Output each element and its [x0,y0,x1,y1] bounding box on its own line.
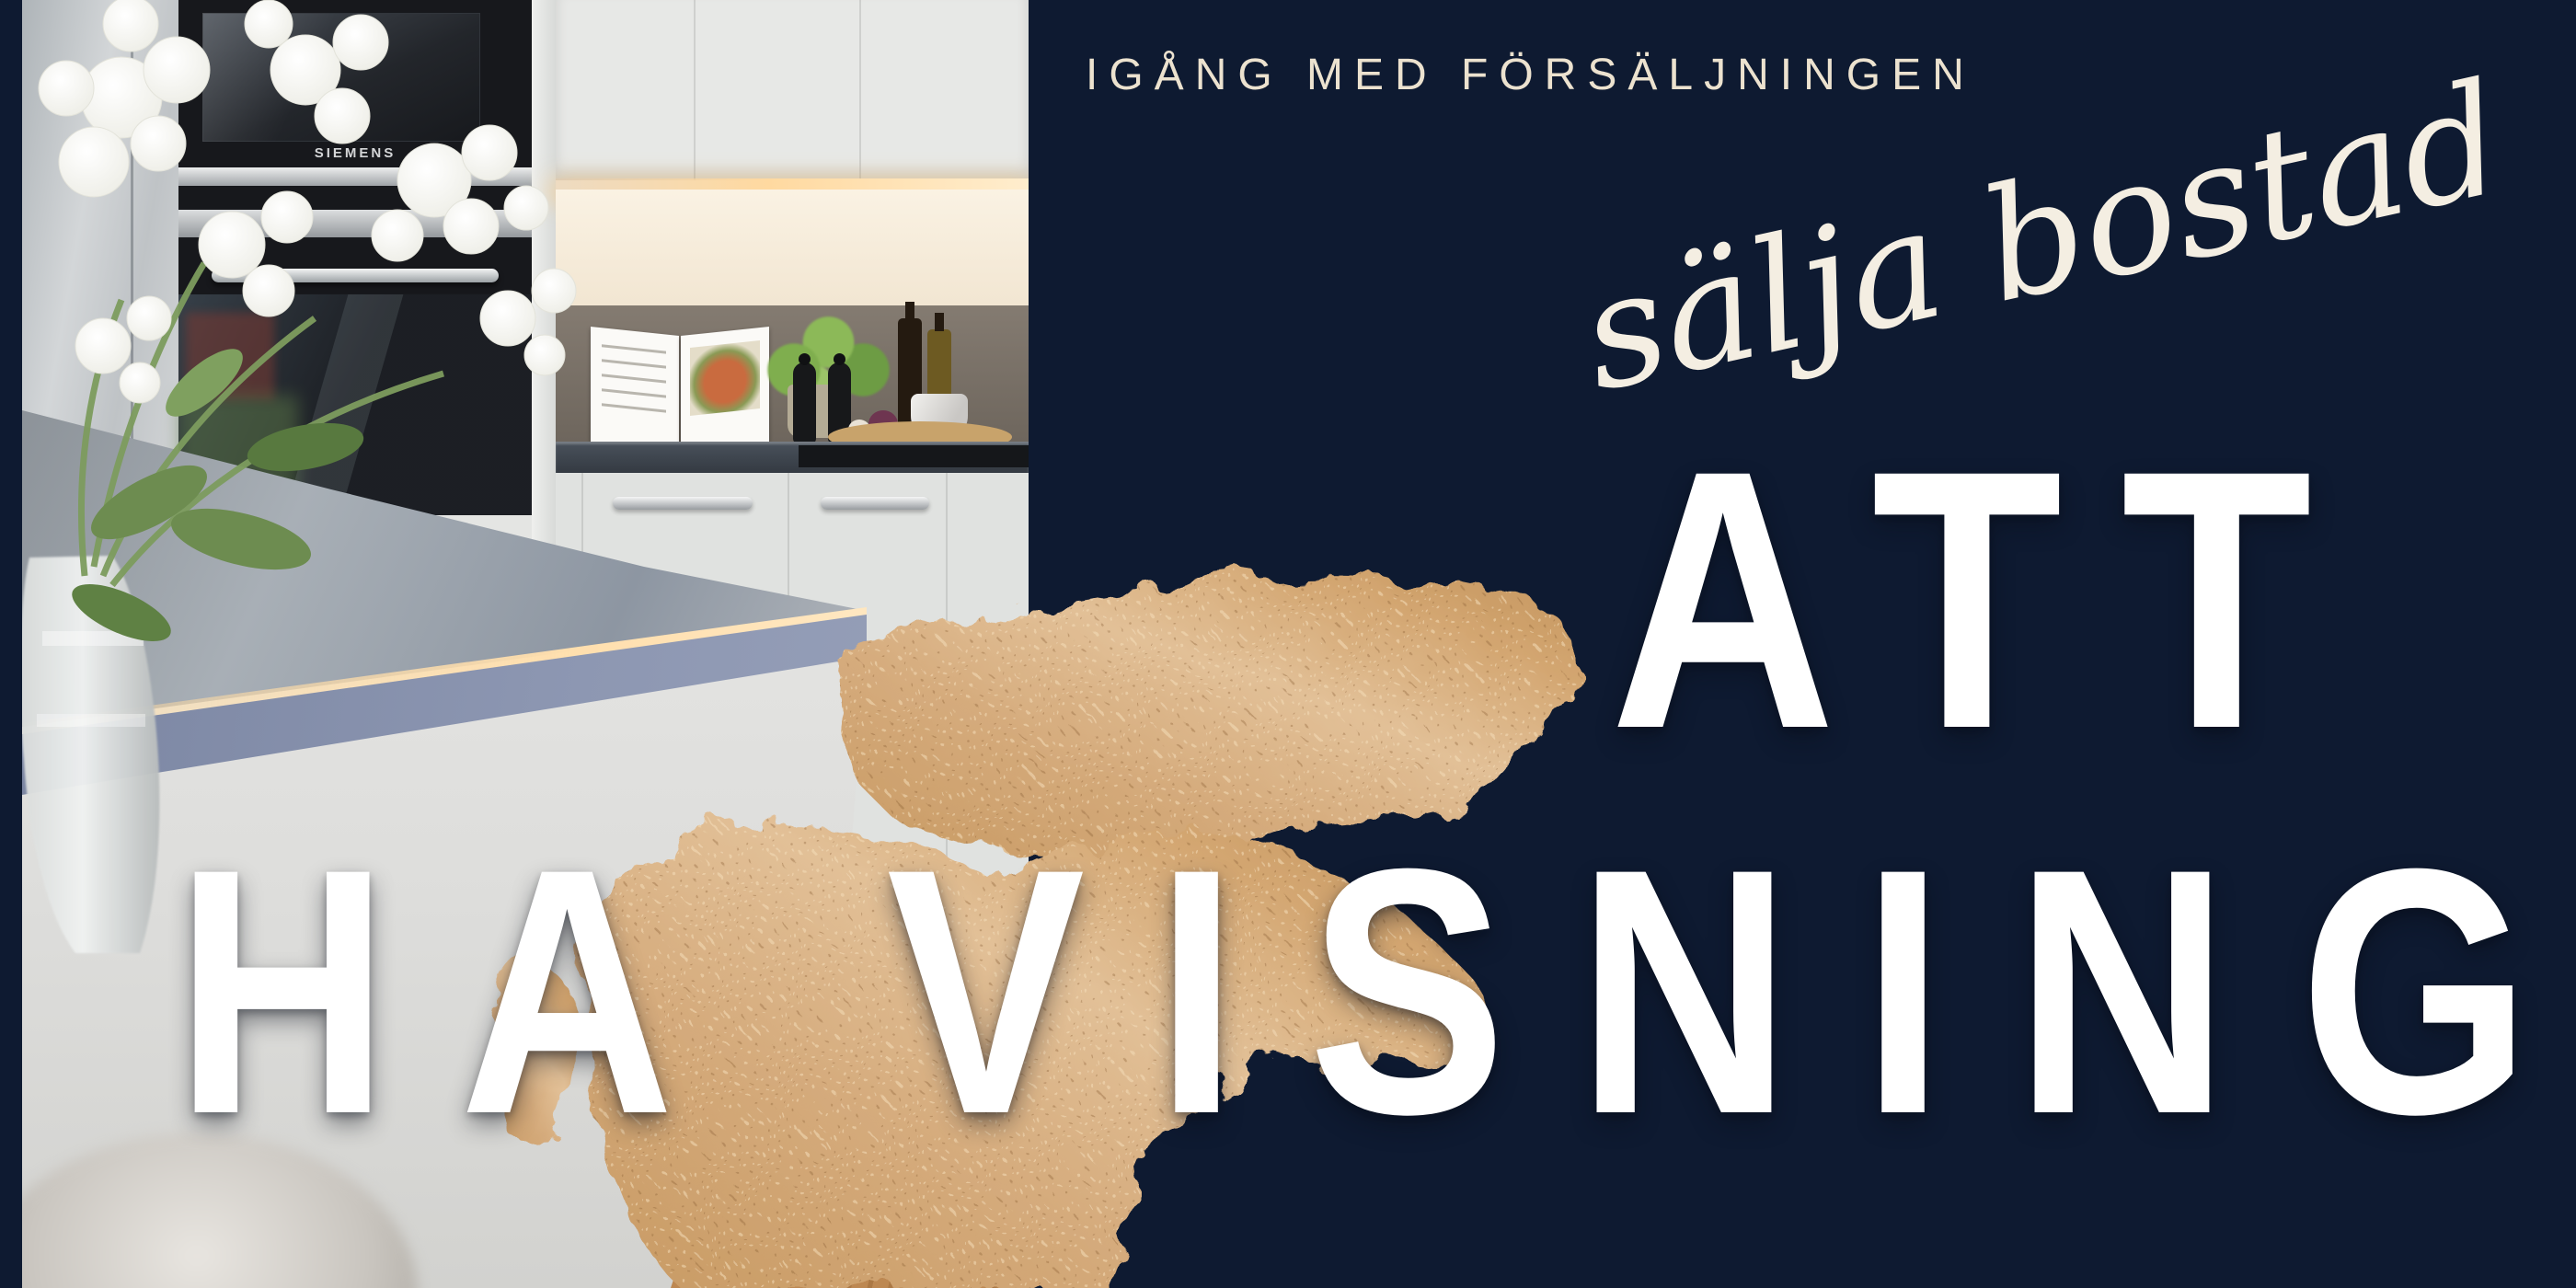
title-line-2: HA VISNING [175,817,2576,1167]
induction-hob [799,445,1029,467]
drawer-handle [821,497,929,510]
pepper-mill [793,362,816,443]
script-headline: sälja bostad [1547,44,2537,431]
left-border-stripe [0,0,22,1288]
title-line-1: ATT [1610,416,2371,784]
cabinet-seam [694,0,696,180]
banner-canvas: SIEMENS [0,0,2576,1288]
cabinet-seam [859,0,861,180]
cookbook-photo [690,340,760,416]
kicker-text: IGÅNG MED FÖRSÄLJNINGEN [1086,50,1975,100]
flower-clusters [39,0,576,403]
